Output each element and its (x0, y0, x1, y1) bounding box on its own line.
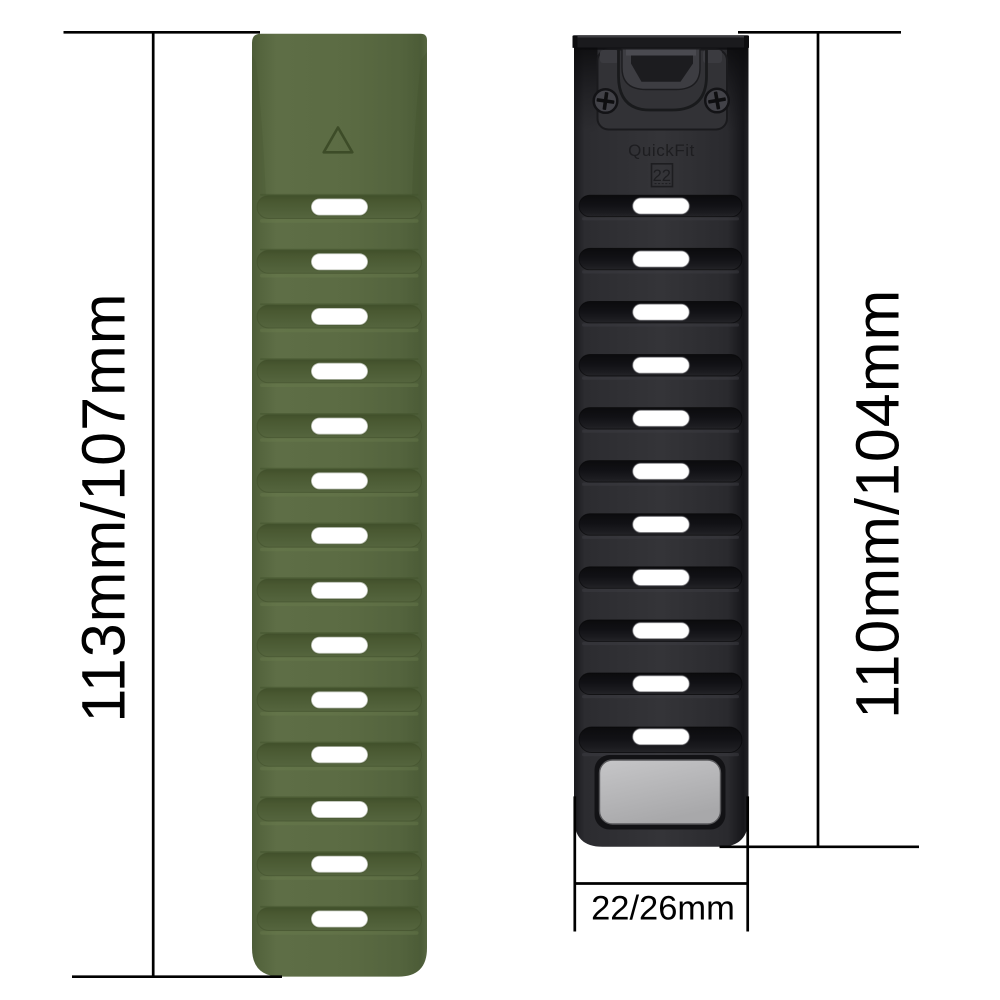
svg-text:22/26mm: 22/26mm (591, 890, 735, 928)
svg-text:113mm/107mm: 113mm/107mm (70, 292, 138, 722)
svg-text:110mm/104mm: 110mm/104mm (844, 289, 912, 719)
svg-text:22: 22 (653, 167, 671, 185)
svg-text:QuickFit: QuickFit (628, 141, 695, 160)
